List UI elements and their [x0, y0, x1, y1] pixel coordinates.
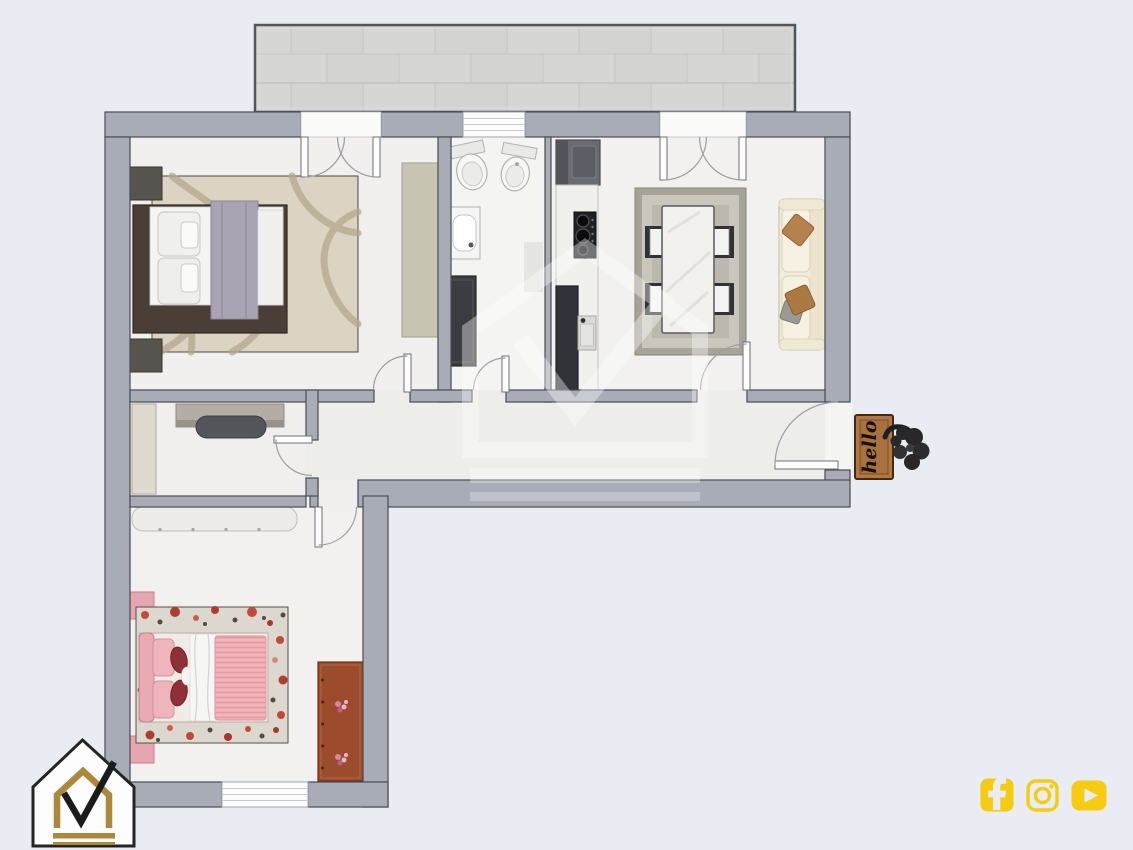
- youtube-icon[interactable]: [1071, 780, 1107, 811]
- lavender-throw: [211, 201, 258, 319]
- dining-chair: [714, 283, 734, 315]
- social-links: [980, 778, 1107, 812]
- instagram-icon[interactable]: [1026, 779, 1059, 812]
- window: [222, 782, 308, 807]
- study-cabinet: [132, 404, 156, 494]
- double-bed: [133, 201, 287, 333]
- headboard: [139, 633, 154, 722]
- dresser: [318, 662, 363, 781]
- desk-chair: [196, 416, 266, 438]
- bedroom-2-wardrobe: [132, 507, 297, 531]
- balcony: [255, 25, 795, 112]
- bedroom-2-door-floor: [318, 480, 358, 510]
- wardrobe: [402, 163, 438, 337]
- tall-cabinet: [556, 286, 578, 390]
- doormat: hello: [855, 415, 893, 479]
- window: [463, 112, 525, 137]
- sofa: [779, 199, 825, 350]
- floor-plan: hello: [0, 0, 1133, 850]
- double-bed-pink: [139, 633, 268, 722]
- facebook-icon[interactable]: [980, 778, 1014, 812]
- dining-chair: [714, 226, 734, 258]
- doormat-text: hello: [859, 420, 881, 473]
- entry-floor: [825, 400, 852, 470]
- house-checkmark-logo: [26, 736, 141, 850]
- duvet: [215, 636, 266, 720]
- floor-plan-canvas: hello: [0, 0, 1133, 850]
- kitchen-sink: [578, 316, 596, 350]
- washbasin: [449, 207, 480, 259]
- nightstand: [130, 339, 162, 372]
- nightstand: [130, 167, 162, 200]
